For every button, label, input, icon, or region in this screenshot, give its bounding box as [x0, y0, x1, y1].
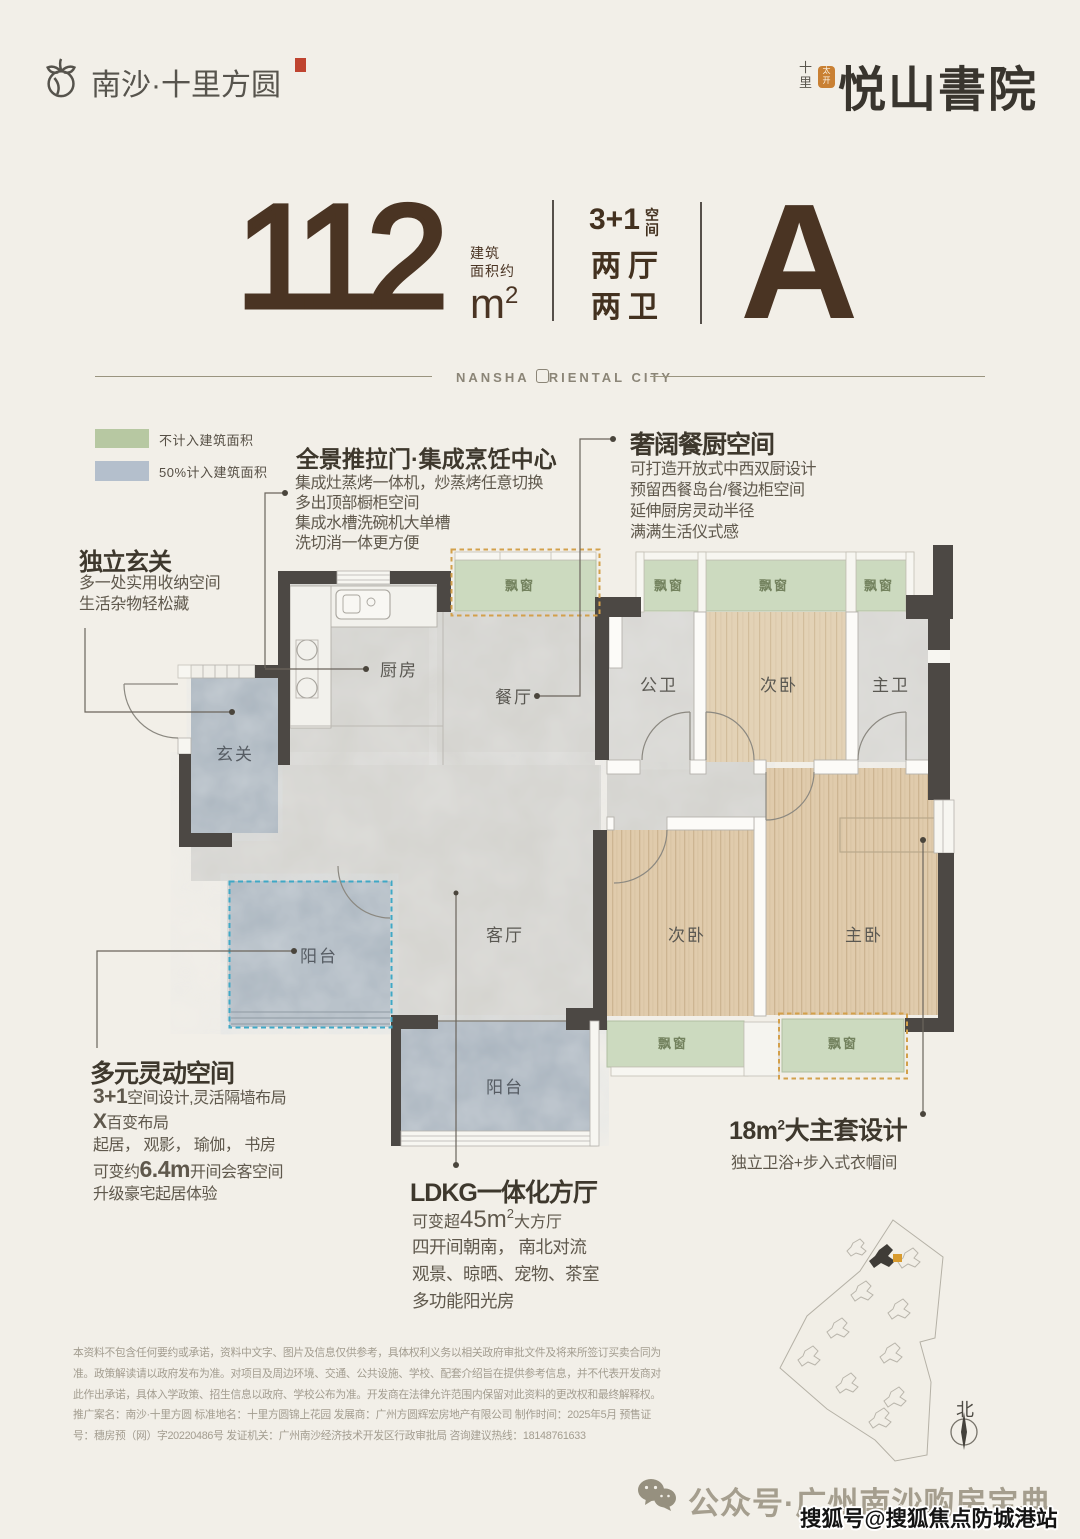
- svg-text:飘窗: 飘窗: [505, 578, 535, 593]
- svg-text:公卫: 公卫: [640, 676, 678, 695]
- svg-text:阳台: 阳台: [486, 1078, 524, 1097]
- svg-text:主卫: 主卫: [872, 676, 910, 695]
- svg-text:飘窗: 飘窗: [658, 1036, 688, 1051]
- svg-text:客厅: 客厅: [486, 926, 524, 945]
- svg-text:餐厅: 餐厅: [495, 688, 533, 707]
- svg-text:次卧: 次卧: [668, 926, 706, 945]
- svg-text:飘窗: 飘窗: [864, 578, 894, 593]
- svg-text:飘窗: 飘窗: [654, 578, 684, 593]
- svg-text:阳台: 阳台: [300, 947, 338, 966]
- svg-text:北: 北: [956, 1400, 974, 1420]
- svg-text:玄关: 玄关: [216, 745, 254, 764]
- svg-text:主卧: 主卧: [845, 926, 883, 945]
- svg-text:飘窗: 飘窗: [759, 578, 789, 593]
- svg-text:次卧: 次卧: [760, 676, 798, 695]
- svg-text:厨房: 厨房: [380, 661, 418, 680]
- svg-text:飘窗: 飘窗: [828, 1036, 858, 1051]
